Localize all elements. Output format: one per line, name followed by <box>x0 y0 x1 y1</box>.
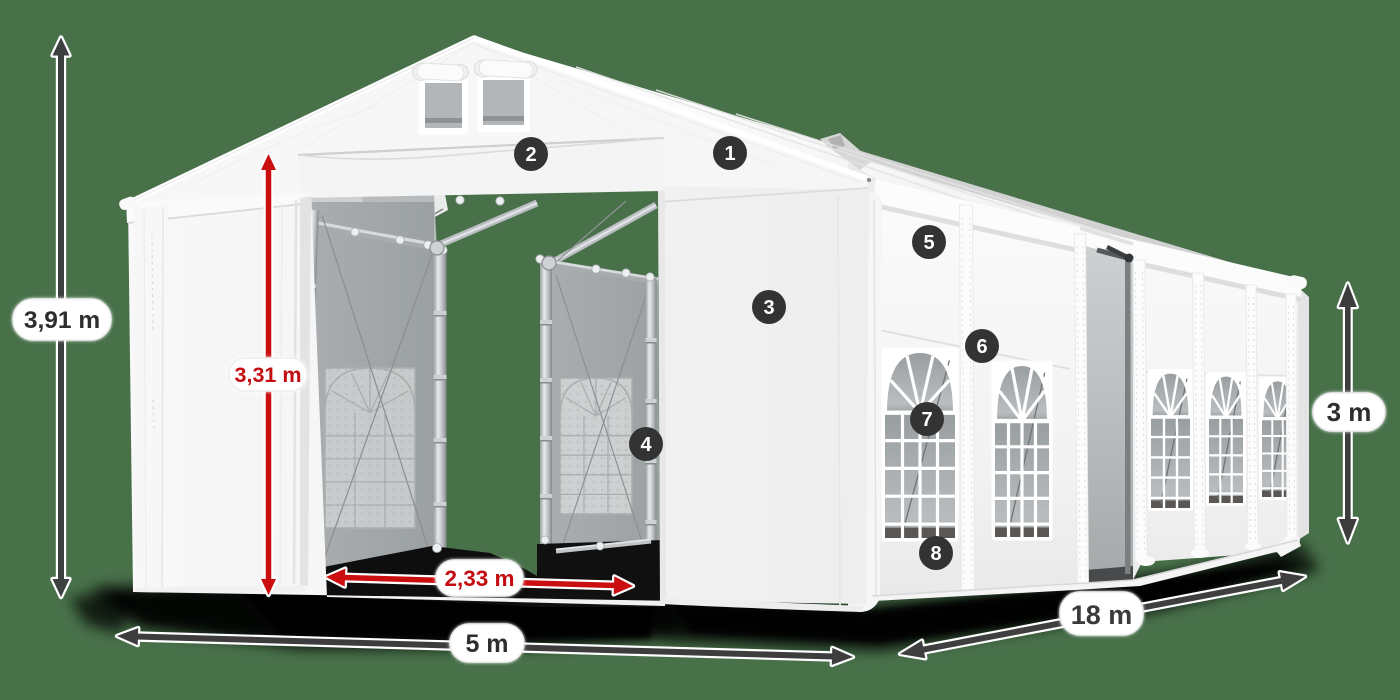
svg-text:3,31 m: 3,31 m <box>235 363 302 387</box>
svg-text:2: 2 <box>525 144 536 166</box>
svg-text:8: 8 <box>930 543 941 565</box>
svg-text:4: 4 <box>640 434 652 456</box>
svg-text:6: 6 <box>976 336 987 358</box>
svg-text:3: 3 <box>763 297 774 319</box>
svg-text:3,91 m: 3,91 m <box>24 307 100 334</box>
svg-text:1: 1 <box>724 143 735 165</box>
svg-text:3 m: 3 m <box>1327 397 1372 427</box>
svg-text:7: 7 <box>921 409 932 431</box>
svg-text:5 m: 5 m <box>465 630 508 658</box>
svg-text:5: 5 <box>923 232 934 254</box>
svg-text:2,33 m: 2,33 m <box>444 566 514 591</box>
svg-text:18 m: 18 m <box>1071 600 1133 630</box>
